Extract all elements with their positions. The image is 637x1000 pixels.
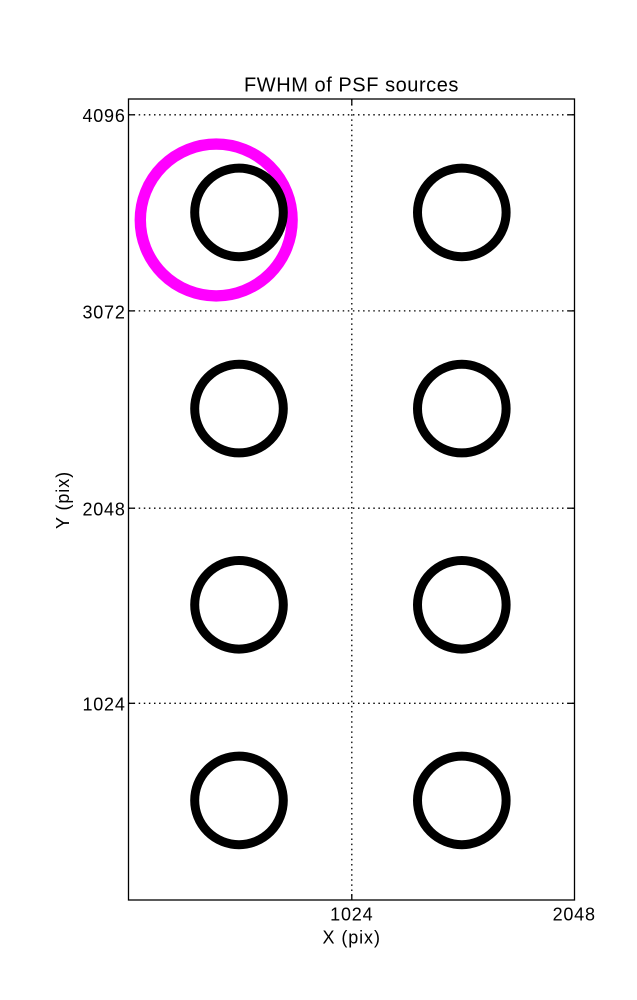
svg-text:Y (pix): Y (pix) xyxy=(53,471,73,529)
svg-text:1024: 1024 xyxy=(330,905,373,925)
svg-text:3072: 3072 xyxy=(82,302,125,322)
svg-text:2048: 2048 xyxy=(553,905,596,925)
svg-text:FWHM of PSF sources: FWHM of PSF sources xyxy=(244,75,459,97)
svg-text:X (pix): X (pix) xyxy=(323,928,381,948)
svg-text:1024: 1024 xyxy=(82,695,125,715)
svg-text:2048: 2048 xyxy=(82,500,125,520)
svg-text:4096: 4096 xyxy=(82,106,125,126)
